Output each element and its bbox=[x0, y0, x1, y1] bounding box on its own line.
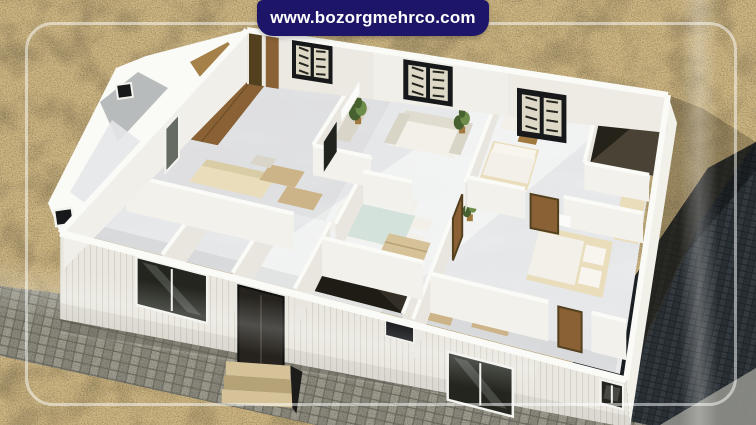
banner-url: www.bozorgmehrco.com bbox=[270, 8, 476, 28]
interior-door-3 bbox=[558, 307, 581, 353]
wood-door-frame bbox=[249, 32, 262, 86]
wall-top bbox=[316, 74, 325, 75]
west-window-2 bbox=[116, 83, 133, 99]
wall-top bbox=[316, 66, 325, 67]
light-streak-vertical bbox=[680, 0, 718, 425]
wall-top bbox=[433, 87, 445, 88]
wall-top bbox=[316, 51, 325, 52]
scene: www.bozorgmehrco.com bbox=[0, 0, 756, 425]
wood-door-frame bbox=[266, 35, 279, 89]
wall-top bbox=[433, 95, 445, 96]
top-banner: www.bozorgmehrco.com bbox=[257, 0, 489, 36]
interior-door-2 bbox=[531, 194, 559, 234]
wall-top bbox=[316, 59, 325, 60]
wall-top bbox=[433, 79, 445, 80]
wall-top bbox=[433, 71, 445, 72]
